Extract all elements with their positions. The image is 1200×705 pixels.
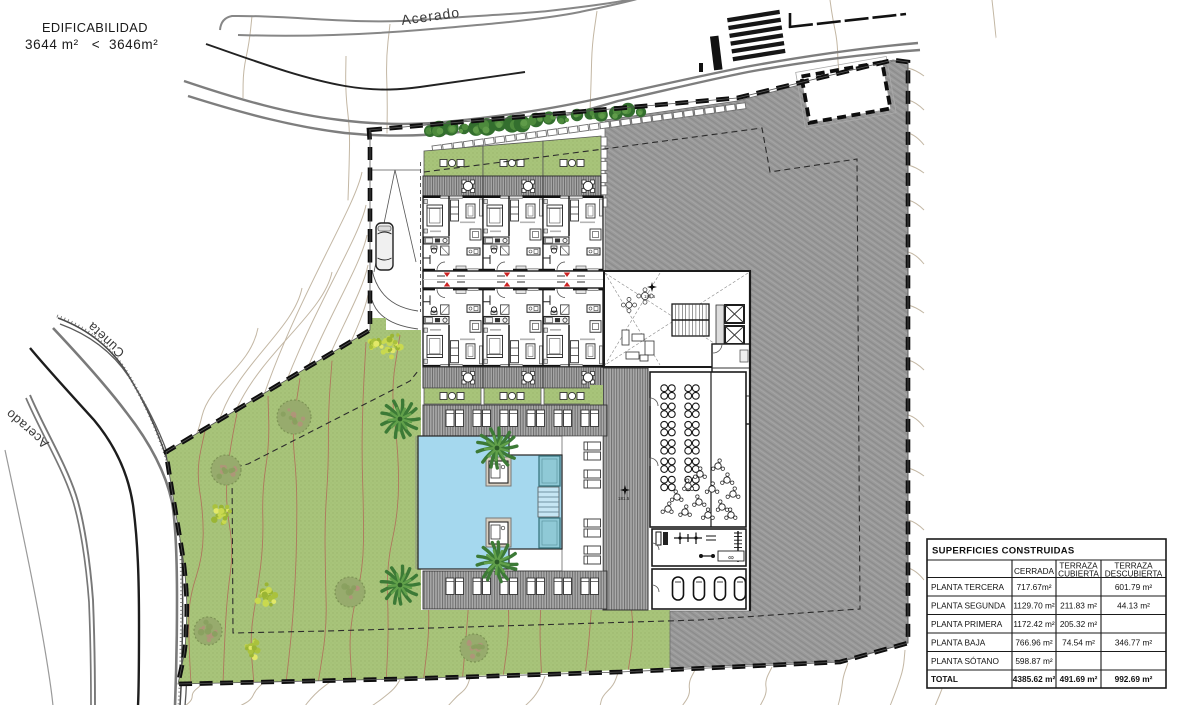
svg-text:3644 m² < 3646m²: 3644 m² < 3646m² [25,37,158,52]
svg-text:491.69 m²: 491.69 m² [1060,674,1098,684]
svg-text:346.77 m²: 346.77 m² [1115,637,1153,647]
svg-text:181.5: 181.5 [644,294,656,299]
svg-text:TOTAL: TOTAL [931,674,958,684]
svg-text:∞: ∞ [728,553,734,562]
svg-text:74.54 m²: 74.54 m² [1062,637,1095,647]
svg-text:EDIFICABILIDAD: EDIFICABILIDAD [42,20,148,35]
svg-text:PLANTA SÓTANO: PLANTA SÓTANO [931,656,999,666]
svg-text:PLANTA TERCERA: PLANTA TERCERA [931,582,1004,592]
svg-text:205.32 m²: 205.32 m² [1060,619,1098,629]
svg-text:211.83 m²: 211.83 m² [1060,600,1097,610]
svg-text:992.69 m²: 992.69 m² [1115,674,1153,684]
svg-text:DESCUBIERTA: DESCUBIERTA [1105,570,1163,579]
svg-text:4385.62 m²: 4385.62 m² [1013,674,1056,684]
svg-text:44.13 m²: 44.13 m² [1117,600,1150,610]
svg-text:CUBIERTA: CUBIERTA [1058,570,1099,579]
svg-text:PLANTA BAJA: PLANTA BAJA [931,637,986,647]
svg-text:SUPERFICIES CONSTRUIDAS: SUPERFICIES CONSTRUIDAS [932,546,1075,557]
svg-text:1129.70 m²: 1129.70 m² [1013,600,1055,610]
svg-text:717.67m²: 717.67m² [1016,582,1051,592]
svg-text:181.5: 181.5 [618,496,630,501]
svg-text:PLANTA SEGUNDA: PLANTA SEGUNDA [931,600,1006,610]
svg-text:598.87 m²: 598.87 m² [1015,656,1053,666]
svg-text:601.79 m²: 601.79 m² [1115,582,1153,592]
svg-text:766.96 m²: 766.96 m² [1015,637,1053,647]
svg-text:1172.42 m²: 1172.42 m² [1013,619,1055,629]
svg-text:PLANTA PRIMERA: PLANTA PRIMERA [931,619,1003,629]
svg-text:CERRADA: CERRADA [1014,567,1055,576]
